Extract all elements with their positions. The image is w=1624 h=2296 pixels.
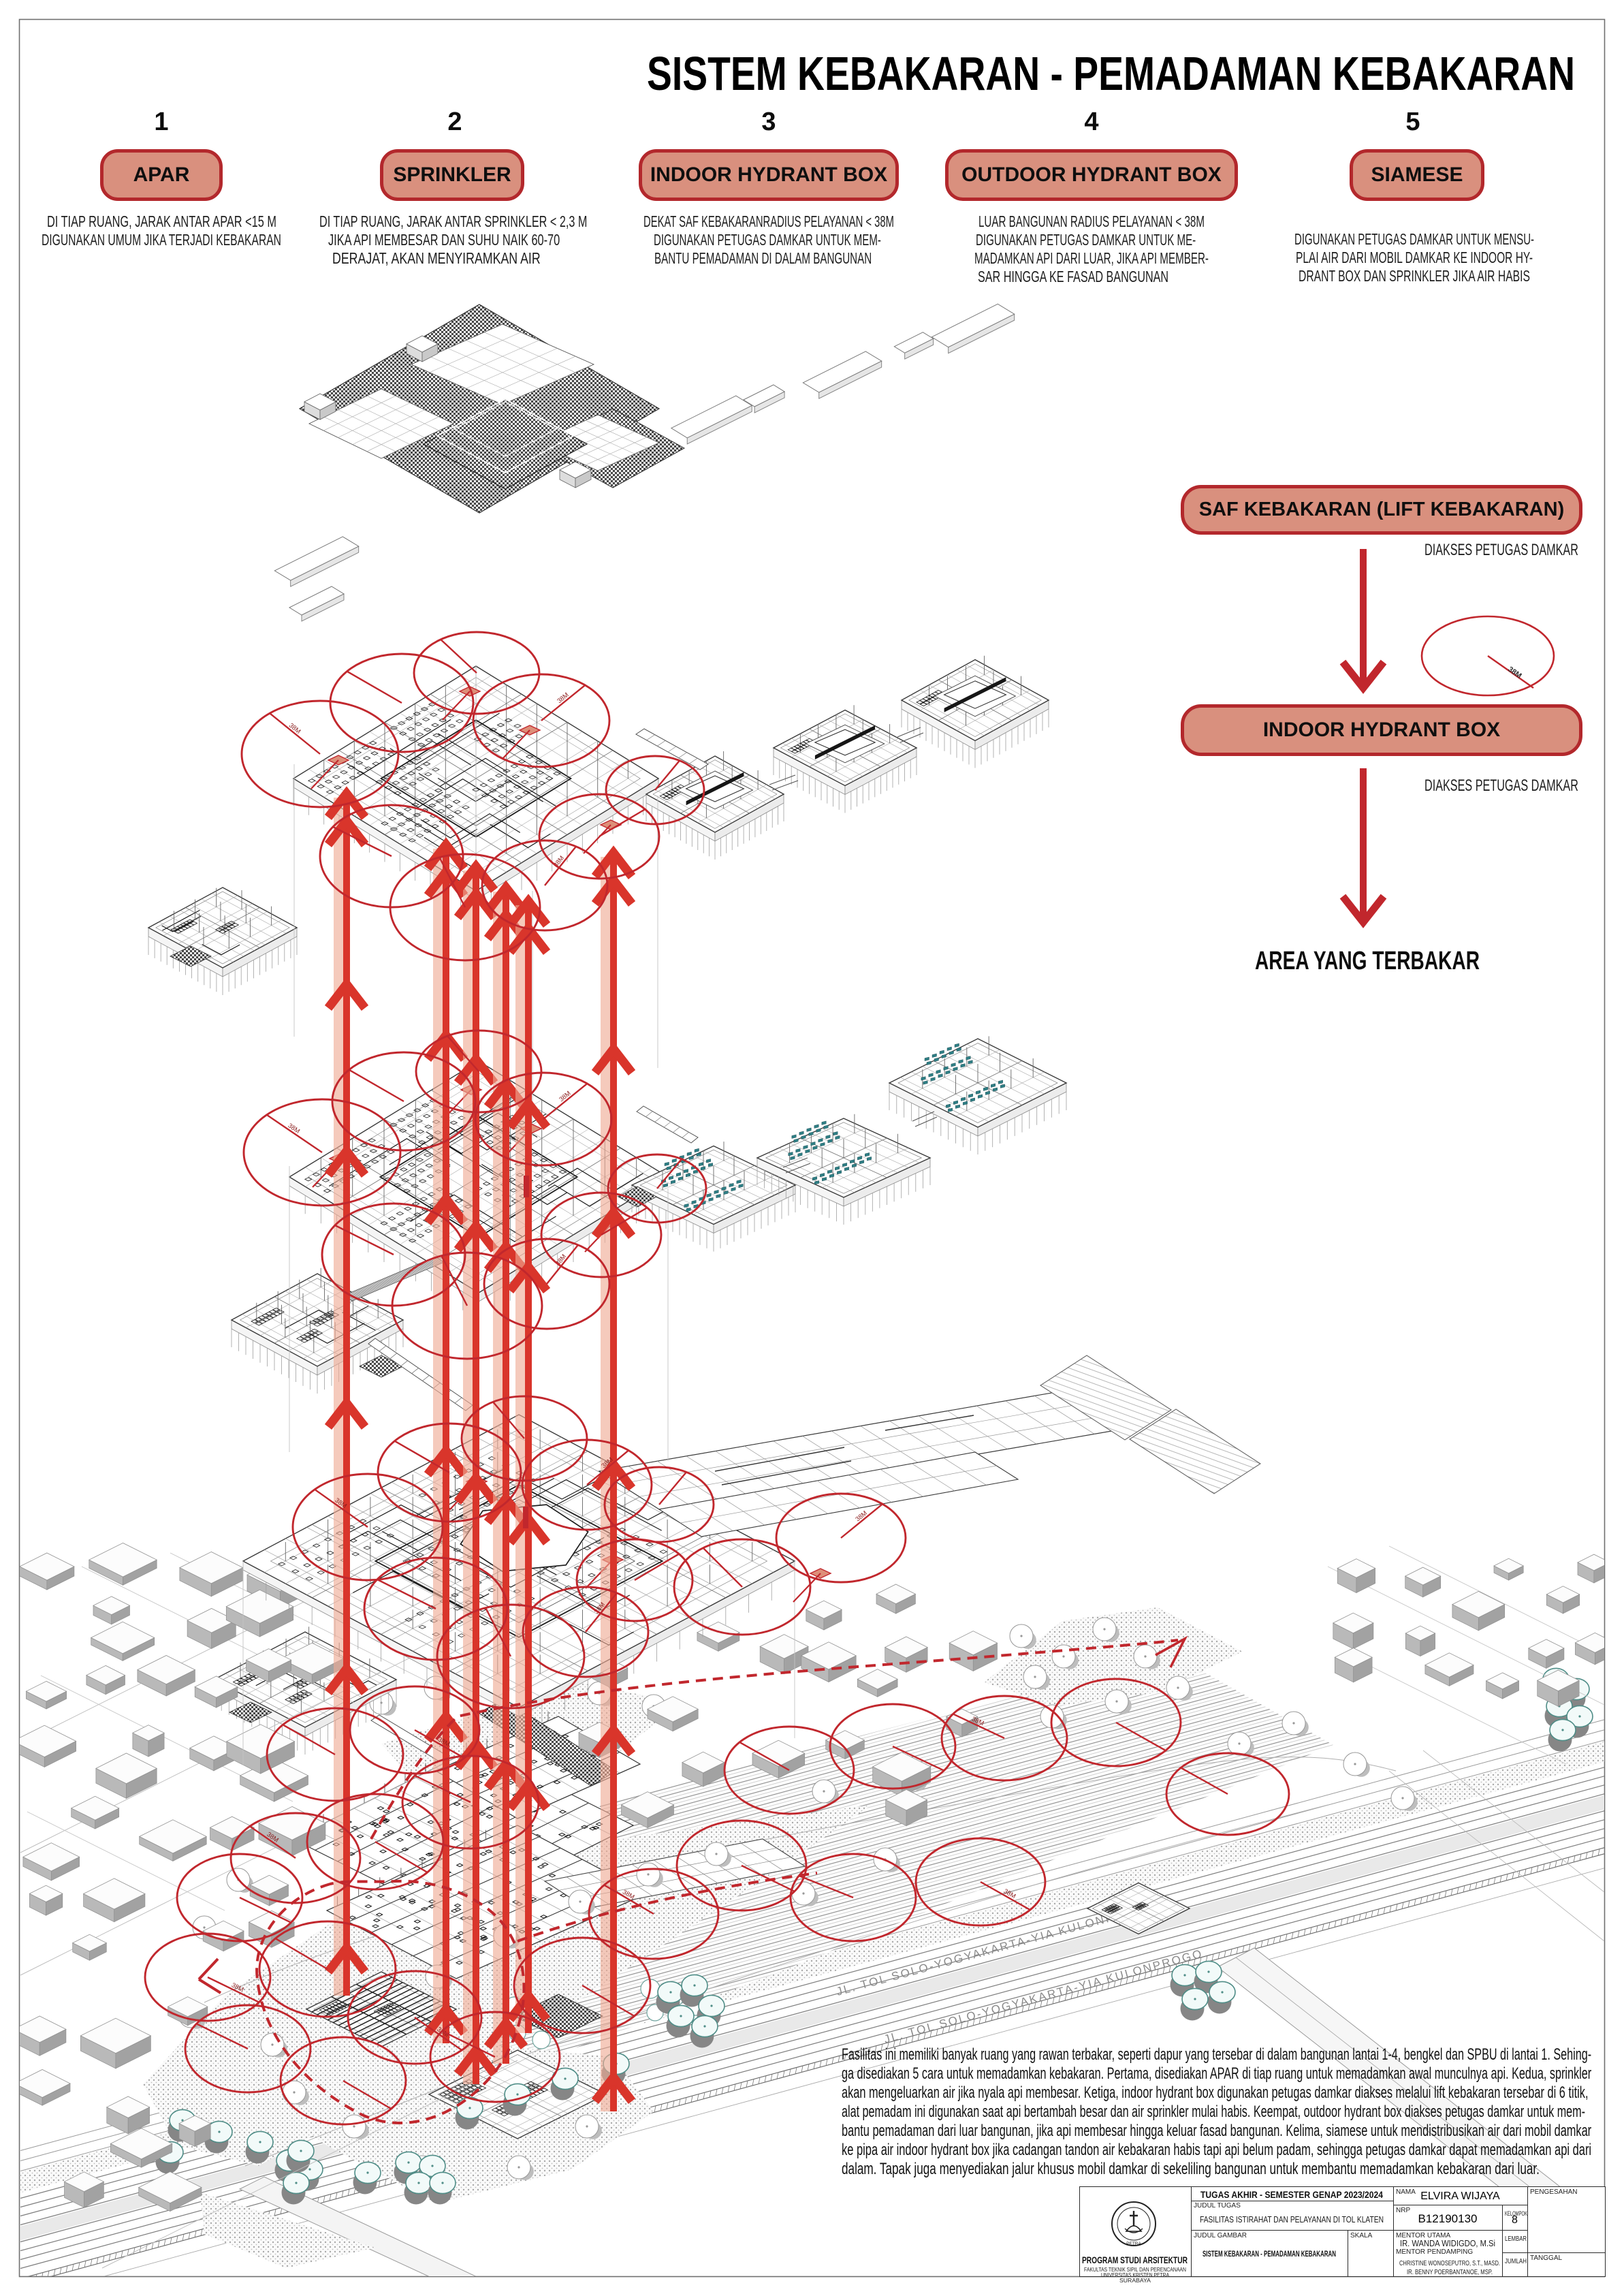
- svg-text:38M: 38M: [558, 1090, 572, 1103]
- svg-text:38M: 38M: [854, 1509, 868, 1523]
- svg-text:38M: 38M: [287, 722, 302, 736]
- svg-text:PETRA: PETRA: [1126, 2242, 1141, 2246]
- svg-text:38M: 38M: [556, 691, 570, 705]
